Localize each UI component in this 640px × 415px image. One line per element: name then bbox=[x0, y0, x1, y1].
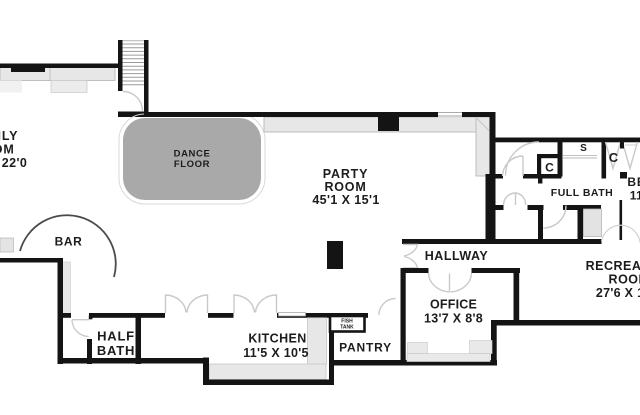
svg-text:HALF: HALF bbox=[97, 329, 135, 344]
svg-text:HALLWAY: HALLWAY bbox=[425, 249, 489, 263]
svg-text:FULL BATH: FULL BATH bbox=[551, 187, 613, 199]
svg-text:OFFICE: OFFICE bbox=[430, 298, 477, 312]
svg-text:KITCHEN: KITCHEN bbox=[248, 332, 306, 346]
svg-text:45'1 X 15'1: 45'1 X 15'1 bbox=[312, 193, 379, 207]
svg-text:PANTRY: PANTRY bbox=[339, 341, 392, 355]
svg-text:S: S bbox=[580, 143, 587, 154]
svg-text:11'5 X 10'5: 11'5 X 10'5 bbox=[243, 346, 309, 360]
svg-text:ROOM: ROOM bbox=[324, 180, 366, 194]
svg-text:BAR: BAR bbox=[55, 235, 83, 249]
svg-text:FAMILY: FAMILY bbox=[0, 129, 18, 143]
svg-text:BEDROOM: BEDROOM bbox=[627, 175, 640, 189]
svg-text:C: C bbox=[545, 161, 554, 175]
svg-text:RECREATION: RECREATION bbox=[586, 259, 640, 273]
svg-text:27'6 X 18'0: 27'6 X 18'0 bbox=[596, 286, 640, 300]
svg-text:DANCE: DANCE bbox=[174, 149, 211, 160]
svg-text:FLOOR: FLOOR bbox=[174, 159, 210, 170]
svg-text:31'0 X 22'0: 31'0 X 22'0 bbox=[0, 156, 27, 170]
svg-text:C: C bbox=[609, 150, 619, 165]
svg-text:11'0 X 11'0: 11'0 X 11'0 bbox=[630, 189, 640, 203]
svg-text:BATH: BATH bbox=[97, 343, 135, 358]
svg-text:13'7 X 8'8: 13'7 X 8'8 bbox=[424, 312, 483, 326]
svg-text:TANK: TANK bbox=[340, 325, 354, 331]
svg-text:ROOM: ROOM bbox=[0, 143, 15, 157]
svg-text:PARTY: PARTY bbox=[323, 167, 368, 181]
svg-text:ROOM: ROOM bbox=[609, 273, 640, 287]
